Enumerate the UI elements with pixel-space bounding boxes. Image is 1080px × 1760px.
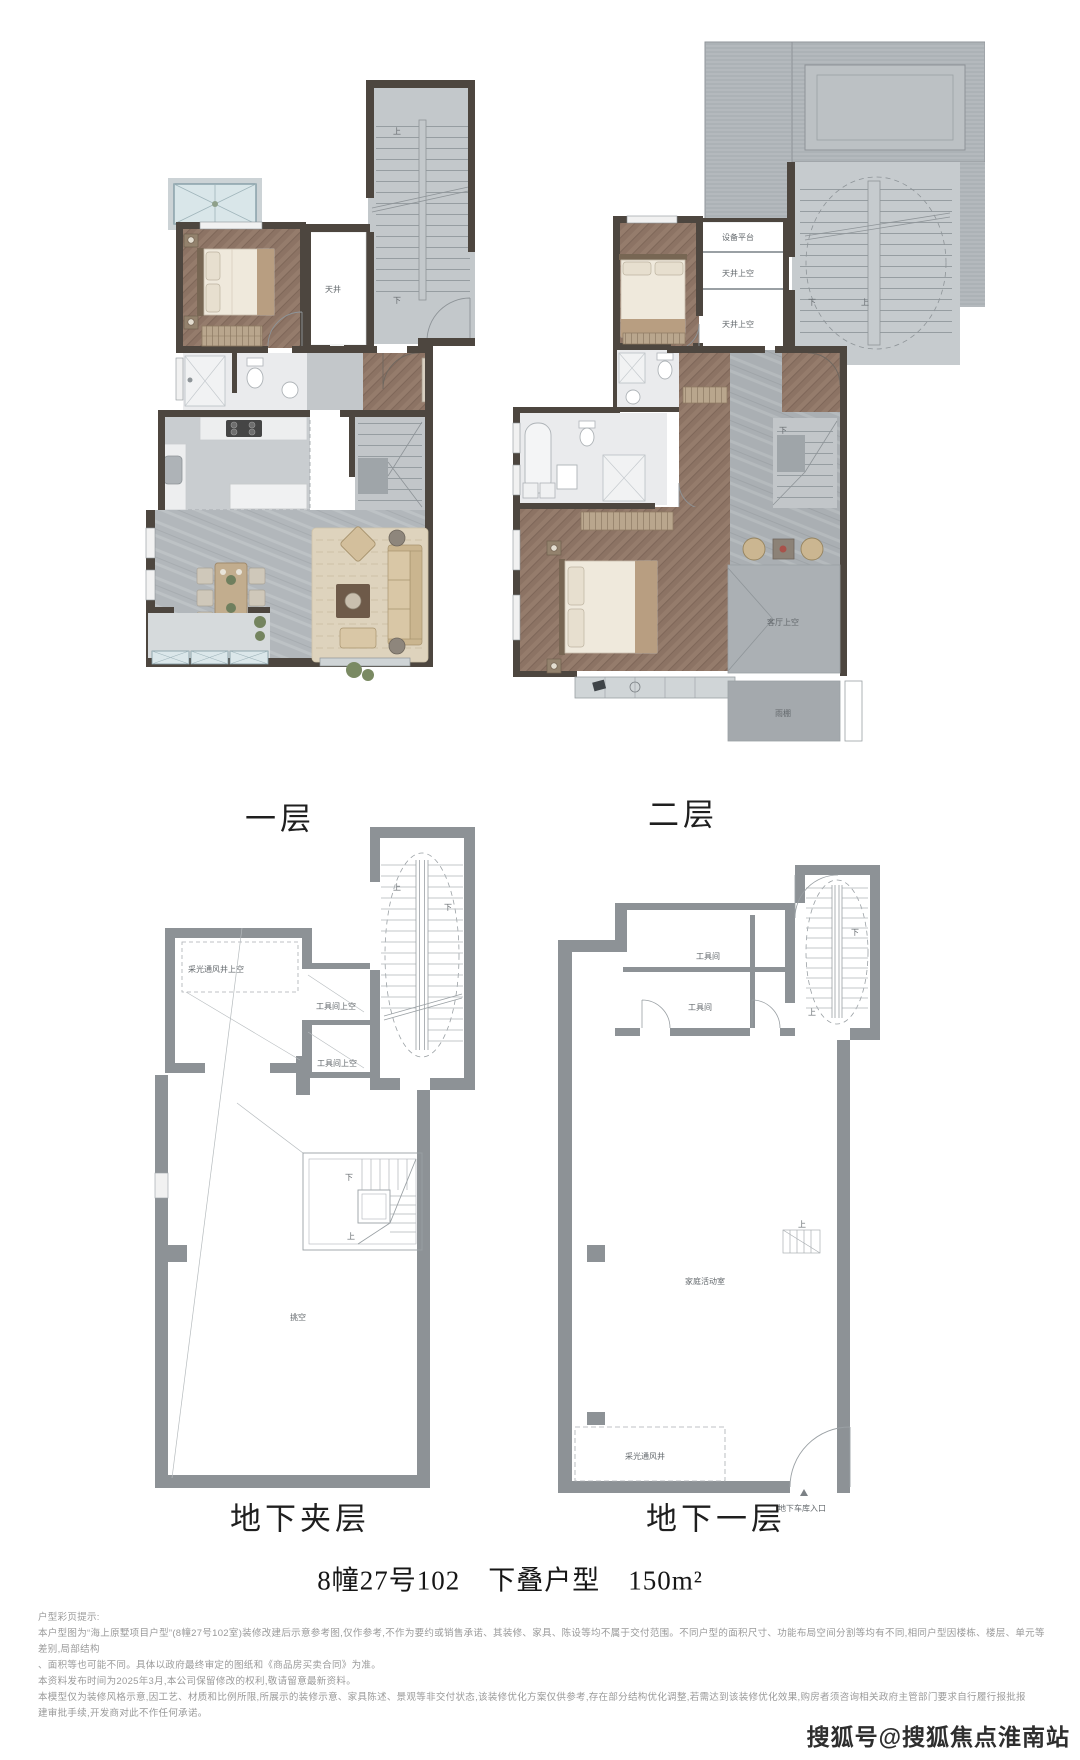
plant-icon [255,631,265,641]
wardrobe [202,326,262,346]
toilet-icon [580,428,594,446]
tool-above-label: 工具间上空 [316,1001,356,1011]
equip-platform-label: 设备平台 [722,232,754,242]
window-bay [575,677,735,698]
sink-icon [626,390,640,404]
stair-down-label: 下 [393,296,401,305]
stove-icon [226,420,262,437]
ottoman [340,628,376,648]
mezzanine-drawing: 上 下 采光通风井上空 工具间上空 工具间上空 下 上 挑空 [150,820,480,1495]
mezz-name: 地下夹层 [230,1494,370,1539]
plan-floor2: 下 上 设备平台 天井上空 天井上空 [505,35,985,750]
shaft-above-room: 采光通风井上空 [182,942,300,1060]
plan-floor1: 上 下 天井 [140,60,475,685]
plan-basement1: 上 下 工具间 工具间 上 家庭活动室 采光通风井 地下车库入口 [550,860,890,1520]
plant-icon [226,603,236,613]
bathtub-icon [525,423,551,493]
sitting-area [743,538,823,560]
floor2-drawing: 下 上 设备平台 天井上空 天井上空 [505,35,985,750]
interior-stairs: 下 [773,418,837,508]
stair-down-label: 下 [808,298,816,307]
tool-above-label: 工具间上空 [317,1058,357,1068]
master-bedroom [513,503,735,698]
shower-icon [188,378,193,383]
disclaimer-line: 、面积等也可能不同。具体以政府最终审定的图纸和《商品房买卖合同》为准。 [38,1658,1050,1674]
bed [547,541,657,673]
lightwell-label: 天井 [325,284,341,294]
tool-room-label: 工具间 [688,1003,712,1012]
sofa [388,551,410,639]
lightwell-room: 天井 [304,224,370,352]
plant-icon [254,616,266,628]
stair-up-label: 上 [393,127,401,136]
floor1-name: 一层 [245,794,315,839]
void-label: 挑空 [290,1312,306,1322]
watermark: 搜狐号@搜狐焦点淮南站 [807,1718,1070,1752]
dressing-corridor [679,350,730,510]
disclaimer-line: 本户型图为“海上原墅项目户型”(8幢27号102室)装修改建后示意参考图,仅作参… [38,1626,1050,1658]
disclaimer-line: 本模型仅为装修风格示意,因工艺、材质和比例所限,所展示的装修示意、家具陈述、景观… [38,1690,1050,1706]
stair-down-label: 下 [779,426,787,435]
living-above-void: 客厅上空 [728,565,840,673]
stair-up-label: 上 [393,883,401,892]
disclaimer-line: 本资料发布时间为2025年3月,本公司保留修改的权利,敬请留意最新资料。 [38,1674,1050,1690]
arrow-up-icon [800,1489,808,1496]
bed [619,254,687,337]
stair-up-label: 上 [861,298,869,307]
stair-down-label: 下 [345,1173,353,1182]
foyer [782,350,840,412]
canopy: 雨棚 [728,681,862,741]
lightwell-above-label: 天井上空 [722,268,754,278]
stair-down-label: 下 [444,903,452,912]
floorplan-sheet: 上 下 天井 [0,0,1080,1760]
tool-room-label: 工具间 [696,952,720,961]
lightwell-above-label: 天井上空 [722,319,754,329]
sink-icon [164,456,182,484]
sink-icon [282,382,298,398]
shrub-icon [346,662,362,678]
sink-icon [557,465,577,489]
floor2-name: 二层 [648,790,718,835]
kitchen-island [230,484,307,509]
bathroom-master [513,407,667,507]
service-rooms: 设备平台 天井上空 天井上空 [690,218,789,367]
plan-mezzanine: 上 下 采光通风井上空 工具间上空 工具间上空 下 上 挑空 [150,820,480,1495]
balcony [148,607,270,664]
entry-foyer [363,353,430,410]
stair-up-label: 上 [347,1232,355,1241]
side-table [389,638,405,654]
bathroom1 [176,353,307,410]
plant-icon [212,201,218,207]
interior-stairs [349,417,425,510]
shaft-label: 采光通风井 [625,1451,665,1461]
side-table [389,530,405,546]
bathroom-upper [613,350,685,412]
living-set [312,526,428,662]
shrub-icon [362,669,374,681]
walls [155,827,475,1488]
toilet-icon [247,368,263,388]
central-stairs [303,1153,422,1250]
canopy-label: 雨棚 [775,708,791,718]
corner-stairs [783,1230,820,1253]
hallway [307,353,363,410]
basement1-drawing: 上 下 工具间 工具间 上 家庭活动室 采光通风井 地下车库入口 [550,860,890,1520]
shaft-above-label: 采光通风井上空 [188,964,244,974]
stairwell: 下 上 [787,162,960,365]
floor1-drawing: 上 下 天井 [140,60,475,685]
disclaimer-heading: 户型彩页提示: [38,1610,1050,1626]
living-above-label: 客厅上空 [767,617,799,627]
plant-icon [226,575,236,585]
toilet-icon [658,361,672,379]
stair-down-label: 下 [851,928,859,937]
sheet-title: 8幢27号102 下叠户型 150m² [317,1559,703,1598]
b1-name: 地下一层 [646,1494,786,1539]
kitchen [160,417,310,510]
tool-rooms: 工具间 工具间 [642,952,780,1028]
disclaimer: 户型彩页提示: 本户型图为“海上原墅项目户型”(8幢27号102室)装修改建后示… [38,1610,1050,1722]
stair-up-label: 上 [798,1220,806,1229]
stairwell: 上 下 [368,82,475,344]
stair-up-label: 上 [808,1008,816,1017]
stairwell [795,875,868,1024]
light-vent-shaft: 采光通风井 [575,1427,725,1481]
family-room-label: 家庭活动室 [685,1276,725,1286]
